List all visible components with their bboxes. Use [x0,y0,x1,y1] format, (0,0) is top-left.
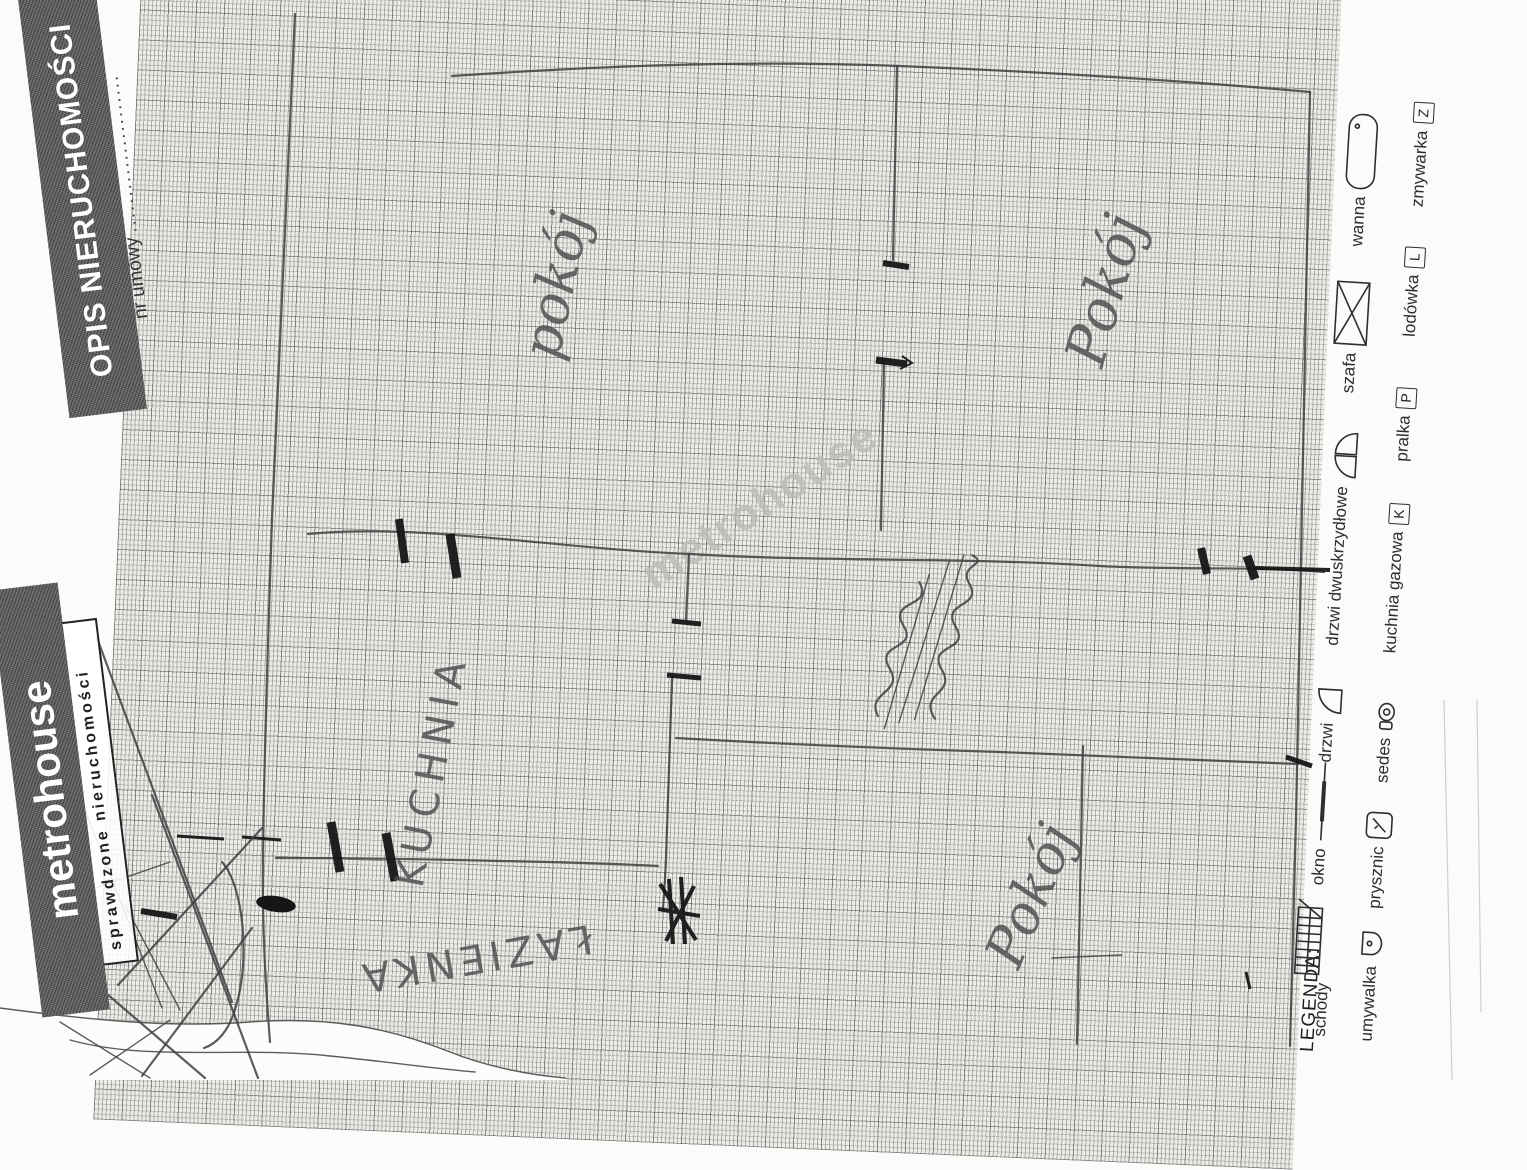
legend-item-drzwi: drzwi [1299,682,1358,764]
double-door-icon [1329,431,1360,481]
toilet-icon [1374,700,1400,731]
legend-label: drzwi [1315,722,1337,763]
sink-icon [1358,928,1388,960]
wardrobe-icon [1333,279,1373,347]
washing-machine-symbol: P [1395,387,1417,409]
dishwasher-symbol: Z [1412,102,1434,124]
legend-item-sedes: sedes [1353,699,1416,785]
gas-stove-symbol: K [1388,503,1410,525]
stairs-icon [1292,898,1327,976]
door-icon [1313,683,1345,717]
legend-item-zmywarka: zmywarka Z [1389,101,1453,209]
legend-item-szafa: szafa [1321,278,1382,395]
legend-item-okno: okno [1291,760,1352,887]
legend-item-wanna: wanna [1330,110,1392,248]
shower-icon [1364,809,1396,841]
legend-label: prysznic [1365,846,1389,909]
legend-label: umywalka [1357,965,1382,1042]
window-icon [1316,761,1331,841]
legend-label: lodówka [1400,274,1424,337]
legend-label: pralka [1392,415,1415,462]
legend-item-pralka: pralka P [1373,386,1435,464]
legend-item-kuchnia-gazowa: kuchnia gazowa K [1361,502,1428,655]
legend-label: wanna [1347,196,1370,247]
legend-item-schody: schody [1276,897,1338,1037]
fridge-symbol: L [1403,246,1425,268]
legend-label: schody [1310,982,1333,1037]
scanned-floor-plan-page: { "document": { "header_title": "OPIS NI… [0,0,1527,1080]
legend-label: sedes [1372,737,1395,784]
bathtub-icon [1345,111,1382,191]
legend-label: szafa [1338,352,1360,394]
legend-label: okno [1308,848,1330,886]
legend: LEGENDA: schody okno [1340,50,1460,1060]
legend-label: zmywarka [1408,130,1433,208]
legend-item-lodowka: lodówka L [1381,245,1444,339]
legend-item-prysznic: prysznic [1346,808,1410,911]
legend-label: drzwi dwuskrzydłowe [1323,486,1353,647]
legend-label: kuchnia gazowa [1380,531,1407,654]
legend-item-umywalka: umywalka [1338,927,1403,1043]
